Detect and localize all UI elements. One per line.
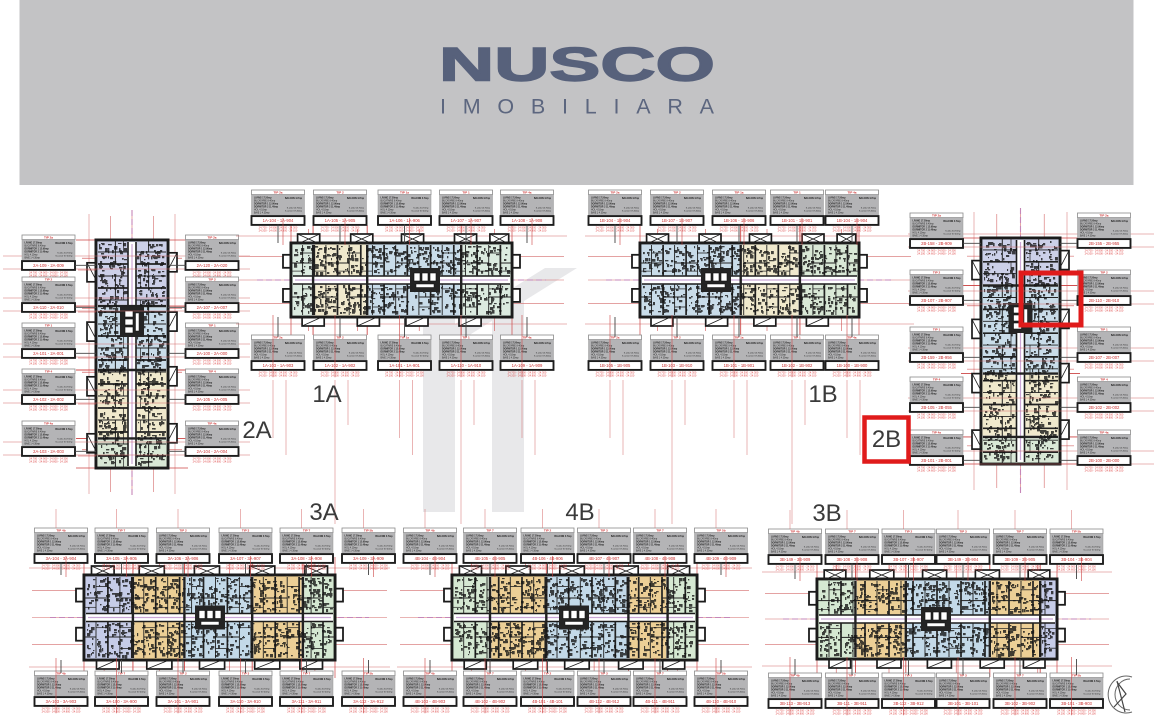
svg-text:BALCON 4.7mp: BALCON 4.7mp bbox=[684, 342, 702, 345]
svg-text:1B-105 - 1B-905: 1B-105 - 1B-905 bbox=[600, 363, 631, 368]
svg-text:DORMITOR 1 12.90mp: DORMITOR 1 12.90mp bbox=[159, 542, 184, 544]
svg-text:HOL 4.10mp: HOL 4.10mp bbox=[466, 691, 480, 693]
svg-text:S.constr 67.40mp: S.constr 67.40mp bbox=[1111, 397, 1129, 400]
svg-text:3B-102 - 3B-902: 3B-102 - 3B-902 bbox=[1005, 701, 1036, 706]
svg-text:TIP 7: TIP 7 bbox=[118, 529, 126, 533]
svg-text:BALCON 4.7mp: BALCON 4.7mp bbox=[55, 242, 73, 245]
svg-text:HOL 4.10mp: HOL 4.10mp bbox=[381, 355, 395, 357]
svg-text:DORMITOR 1 12.90mp: DORMITOR 1 12.90mp bbox=[188, 249, 213, 251]
svg-text:S.constr 67.40mp: S.constr 67.40mp bbox=[667, 548, 685, 551]
svg-text:BALCON 4.7mp: BALCON 4.7mp bbox=[915, 680, 933, 683]
svg-text:LIVING 17.50mp: LIVING 17.50mp bbox=[913, 278, 931, 280]
svg-text:BAIE 1 4.30mp: BAIE 1 4.30mp bbox=[580, 693, 596, 696]
svg-text:DORMITOR 1 12.90mp: DORMITOR 1 12.90mp bbox=[442, 204, 467, 206]
svg-text:3B-107 - 3B-907: 3B-107 - 3B-907 bbox=[893, 557, 924, 562]
svg-text:TIP 2: TIP 2 bbox=[45, 278, 53, 282]
svg-text:24.200 - 24.600 - 24.800 - 24.: 24.200 - 24.600 - 24.800 - 24.100 bbox=[349, 710, 388, 714]
svg-text:BUCATARIE 8.40mp: BUCATARIE 8.40mp bbox=[1080, 440, 1102, 443]
svg-text:BAIE 1 4.30mp: BAIE 1 4.30mp bbox=[406, 693, 422, 696]
svg-text:S.utila 54.70mp: S.utila 54.70mp bbox=[945, 229, 961, 232]
svg-text:HOL 4.10mp: HOL 4.10mp bbox=[715, 355, 729, 357]
svg-text:HOL 4.10mp: HOL 4.10mp bbox=[697, 691, 711, 693]
svg-text:DORMITOR 1 12.90mp: DORMITOR 1 12.90mp bbox=[771, 687, 796, 689]
svg-text:BUCATARIE 8.40mp: BUCATARIE 8.40mp bbox=[406, 538, 428, 541]
svg-text:BAIE 1 4.30mp: BAIE 1 4.30mp bbox=[503, 357, 519, 360]
svg-text:DORMITOR 2 11.40mp: DORMITOR 2 11.40mp bbox=[503, 351, 528, 354]
svg-text:S.utila 54.70mp: S.utila 54.70mp bbox=[861, 545, 877, 548]
svg-text:4B-104 - 4B-904: 4B-104 - 4B-904 bbox=[415, 556, 446, 561]
svg-text:DORMITOR 2 11.40mp: DORMITOR 2 11.40mp bbox=[345, 544, 370, 547]
svg-text:3A-101 - 3A-901: 3A-101 - 3A-901 bbox=[168, 699, 199, 704]
svg-text:24.200 - 24.600 - 24.800 - 24.: 24.200 - 24.600 - 24.800 - 24.100 bbox=[833, 374, 872, 378]
svg-text:24.200 - 24.600 - 24.800 - 24.: 24.200 - 24.600 - 24.800 - 24.100 bbox=[1085, 309, 1124, 313]
svg-text:S.utila 54.70mp: S.utila 54.70mp bbox=[917, 545, 933, 548]
svg-text:DORMITOR 2 11.40mp: DORMITOR 2 11.40mp bbox=[381, 351, 406, 354]
svg-text:BUCATARIE 8.40mp: BUCATARIE 8.40mp bbox=[828, 345, 850, 348]
svg-text:S.utila 54.70mp: S.utila 54.70mp bbox=[536, 206, 552, 209]
svg-text:HOL 4.10mp: HOL 4.10mp bbox=[913, 397, 927, 399]
svg-text:TIP 4b: TIP 4b bbox=[56, 529, 65, 533]
svg-text:S.constr 67.40mp: S.constr 67.40mp bbox=[411, 210, 429, 213]
svg-text:BUCATARIE 8.40mp: BUCATARIE 8.40mp bbox=[25, 245, 47, 248]
svg-text:DORMITOR 1 12.90mp: DORMITOR 1 12.90mp bbox=[466, 685, 491, 687]
svg-text:S.utila 54.70mp: S.utila 54.70mp bbox=[613, 687, 629, 690]
svg-text:HOL 4.10mp: HOL 4.10mp bbox=[1080, 450, 1094, 452]
svg-text:DORMITOR 1 12.90mp: DORMITOR 1 12.90mp bbox=[1080, 227, 1105, 229]
svg-text:BAIE 1 4.30mp: BAIE 1 4.30mp bbox=[283, 550, 299, 553]
svg-text:BALCON 4.7mp: BALCON 4.7mp bbox=[859, 342, 877, 345]
svg-text:S.utila 54.70mp: S.utila 54.70mp bbox=[624, 206, 640, 209]
svg-text:HOL 4.10mp: HOL 4.10mp bbox=[828, 210, 842, 212]
svg-text:1A-103 - 1A-903: 1A-103 - 1A-903 bbox=[263, 363, 294, 368]
svg-text:BAIE 1 4.30mp: BAIE 1 4.30mp bbox=[591, 212, 607, 215]
svg-text:LIVING 17.50mp: LIVING 17.50mp bbox=[524, 536, 542, 538]
svg-text:HOL 4.10mp: HOL 4.10mp bbox=[406, 548, 420, 550]
svg-text:BALCON 4.7mp: BALCON 4.7mp bbox=[219, 376, 237, 379]
svg-text:BUCATARIE 8.40mp: BUCATARIE 8.40mp bbox=[381, 200, 403, 203]
svg-text:S.utila 54.70mp: S.utila 54.70mp bbox=[1113, 286, 1129, 289]
svg-text:LIVING 17.50mp: LIVING 17.50mp bbox=[466, 536, 484, 538]
svg-text:S.utila 54.70mp: S.utila 54.70mp bbox=[730, 544, 746, 547]
svg-text:2B: 2B bbox=[872, 426, 901, 453]
svg-text:BALCON 4.7mp: BALCON 4.7mp bbox=[347, 197, 365, 200]
svg-text:S.utila 54.70mp: S.utila 54.70mp bbox=[192, 687, 208, 690]
svg-text:BUCATARIE 8.40mp: BUCATARIE 8.40mp bbox=[188, 333, 210, 336]
svg-text:DORMITOR 2 11.40mp: DORMITOR 2 11.40mp bbox=[773, 206, 798, 209]
svg-text:DORMITOR 2 11.40mp: DORMITOR 2 11.40mp bbox=[442, 206, 467, 209]
svg-text:4B-107 - 4B-907: 4B-107 - 4B-907 bbox=[589, 556, 620, 561]
svg-text:DORMITOR 2 11.40mp: DORMITOR 2 11.40mp bbox=[885, 545, 910, 548]
svg-text:DORMITOR 1 12.90mp: DORMITOR 1 12.90mp bbox=[885, 687, 910, 689]
svg-text:3A-106 - 3A-906: 3A-106 - 3A-906 bbox=[168, 556, 199, 561]
svg-text:DORMITOR 2 11.40mp: DORMITOR 2 11.40mp bbox=[188, 251, 213, 254]
svg-text:DORMITOR 2 11.40mp: DORMITOR 2 11.40mp bbox=[524, 687, 549, 690]
svg-text:BAIE 1 4.30mp: BAIE 1 4.30mp bbox=[188, 299, 204, 302]
svg-text:BUCATARIE 8.40mp: BUCATARIE 8.40mp bbox=[653, 200, 675, 203]
svg-text:DORMITOR 2 11.40mp: DORMITOR 2 11.40mp bbox=[1053, 545, 1078, 548]
svg-text:24.200 - 24.600 - 24.800 - 24.: 24.200 - 24.600 - 24.800 - 24.100 bbox=[1057, 712, 1096, 716]
svg-text:S.constr 67.40mp: S.constr 67.40mp bbox=[943, 450, 961, 453]
svg-text:DORMITOR 1 12.90mp: DORMITOR 1 12.90mp bbox=[25, 435, 50, 437]
svg-text:24.200 - 24.600 - 24.800 - 24.: 24.200 - 24.600 - 24.800 - 24.100 bbox=[528, 710, 567, 714]
svg-text:BAIE 1 4.30mp: BAIE 1 4.30mp bbox=[98, 550, 114, 553]
svg-text:2B-102 - 2B-002: 2B-102 - 2B-002 bbox=[1089, 405, 1120, 410]
svg-text:DORMITOR 1 12.90mp: DORMITOR 1 12.90mp bbox=[524, 685, 549, 687]
svg-text:S.constr 67.40mp: S.constr 67.40mp bbox=[375, 548, 393, 551]
svg-text:BAIE 1 4.30mp: BAIE 1 4.30mp bbox=[885, 695, 901, 698]
svg-text:BAIE 1 4.30mp: BAIE 1 4.30mp bbox=[773, 212, 789, 215]
svg-text:DORMITOR 2 11.40mp: DORMITOR 2 11.40mp bbox=[25, 437, 50, 440]
svg-text:HOL 4.10mp: HOL 4.10mp bbox=[697, 548, 711, 550]
svg-text:3B-104 - 3B-904: 3B-104 - 3B-904 bbox=[1061, 557, 1092, 562]
svg-text:BUCATARIE 8.40mp: BUCATARIE 8.40mp bbox=[222, 538, 244, 541]
svg-text:LIVING 17.50mp: LIVING 17.50mp bbox=[771, 537, 789, 539]
svg-text:HOL 4.10mp: HOL 4.10mp bbox=[828, 355, 842, 357]
svg-text:DORMITOR 1 12.90mp: DORMITOR 1 12.90mp bbox=[25, 249, 50, 251]
svg-text:DORMITOR 2 11.40mp: DORMITOR 2 11.40mp bbox=[222, 544, 247, 547]
svg-text:1A-102 - 1A-902: 1A-102 - 1A-902 bbox=[325, 363, 356, 368]
svg-text:DORMITOR 1 12.90mp: DORMITOR 1 12.90mp bbox=[316, 349, 341, 351]
svg-text:TIP 4a: TIP 4a bbox=[932, 431, 941, 435]
svg-text:BUCATARIE 8.40mp: BUCATARIE 8.40mp bbox=[773, 200, 795, 203]
svg-text:BALCON 4.7mp: BALCON 4.7mp bbox=[684, 197, 702, 200]
svg-text:HOL 4.10mp: HOL 4.10mp bbox=[466, 548, 480, 550]
svg-text:S.utila 54.70mp: S.utila 54.70mp bbox=[57, 293, 73, 296]
svg-text:S.constr 67.40mp: S.constr 67.40mp bbox=[55, 389, 73, 392]
svg-text:2A-100 - 2A-000: 2A-100 - 2A-000 bbox=[197, 351, 228, 356]
svg-text:BAIE 1 4.30mp: BAIE 1 4.30mp bbox=[25, 345, 41, 348]
svg-text:BUCATARIE 8.40mp: BUCATARIE 8.40mp bbox=[697, 681, 719, 684]
svg-text:BAIE 1 4.30mp: BAIE 1 4.30mp bbox=[653, 212, 669, 215]
svg-text:DORMITOR 1 12.90mp: DORMITOR 1 12.90mp bbox=[503, 349, 528, 351]
svg-text:S.utila 54.70mp: S.utila 54.70mp bbox=[686, 351, 702, 354]
svg-text:LIVING 17.50mp: LIVING 17.50mp bbox=[466, 679, 484, 681]
svg-text:BUCATARIE 8.40mp: BUCATARIE 8.40mp bbox=[1080, 223, 1102, 226]
svg-text:LIVING 17.50mp: LIVING 17.50mp bbox=[771, 681, 789, 683]
svg-text:1A-106 - 1A-906: 1A-106 - 1A-906 bbox=[389, 218, 420, 223]
svg-text:DORMITOR 2 11.40mp: DORMITOR 2 11.40mp bbox=[25, 339, 50, 342]
svg-text:DORMITOR 2 11.40mp: DORMITOR 2 11.40mp bbox=[913, 229, 938, 232]
svg-text:HOL 4.10mp: HOL 4.10mp bbox=[316, 355, 330, 357]
svg-text:BALCON 4.7mp: BALCON 4.7mp bbox=[859, 197, 877, 200]
svg-text:24.200 - 24.600 - 24.800 - 24.: 24.200 - 24.600 - 24.800 - 24.100 bbox=[193, 460, 232, 464]
svg-text:BUCATARIE 8.40mp: BUCATARIE 8.40mp bbox=[715, 345, 737, 348]
svg-text:BALCON 4.7mp: BALCON 4.7mp bbox=[411, 342, 429, 345]
svg-text:LIVING 17.50mp: LIVING 17.50mp bbox=[939, 537, 957, 539]
svg-text:TIP 7: TIP 7 bbox=[656, 529, 664, 533]
svg-text:24.200 - 24.600 - 24.800 - 24.: 24.200 - 24.600 - 24.800 - 24.100 bbox=[889, 712, 928, 716]
svg-text:HOL 4.10mp: HOL 4.10mp bbox=[591, 355, 605, 357]
svg-text:S.utila 54.70mp: S.utila 54.70mp bbox=[945, 393, 961, 396]
svg-text:TIP 2: TIP 2 bbox=[208, 278, 216, 282]
svg-text:HOL 4.10mp: HOL 4.10mp bbox=[771, 693, 785, 695]
svg-text:HOL 4.10mp: HOL 4.10mp bbox=[254, 355, 268, 357]
svg-text:HOL 4.10mp: HOL 4.10mp bbox=[345, 691, 359, 693]
svg-text:DORMITOR 1 12.90mp: DORMITOR 1 12.90mp bbox=[25, 291, 50, 293]
svg-text:S.utila 54.70mp: S.utila 54.70mp bbox=[192, 544, 208, 547]
svg-text:HOL 4.10mp: HOL 4.10mp bbox=[913, 347, 927, 349]
svg-text:BAIE 1 4.30mp: BAIE 1 4.30mp bbox=[188, 391, 204, 394]
svg-text:S.constr 67.40mp: S.constr 67.40mp bbox=[728, 691, 746, 694]
svg-text:DORMITOR 1 12.90mp: DORMITOR 1 12.90mp bbox=[828, 543, 853, 545]
svg-text:S.constr 67.40mp: S.constr 67.40mp bbox=[943, 347, 961, 350]
svg-text:LIVING 17.50mp: LIVING 17.50mp bbox=[715, 198, 733, 200]
svg-text:LIVING 17.50mp: LIVING 17.50mp bbox=[580, 679, 598, 681]
svg-text:S.constr 67.40mp: S.constr 67.40mp bbox=[473, 210, 491, 213]
svg-text:S.utila 54.70mp: S.utila 54.70mp bbox=[861, 689, 877, 692]
svg-text:LIVING 17.50mp: LIVING 17.50mp bbox=[222, 679, 240, 681]
svg-text:S.constr 67.40mp: S.constr 67.40mp bbox=[437, 548, 455, 551]
svg-text:HOL 4.10mp: HOL 4.10mp bbox=[222, 548, 236, 550]
svg-text:S.constr 67.40mp: S.constr 67.40mp bbox=[554, 548, 572, 551]
svg-text:BUCATARIE 8.40mp: BUCATARIE 8.40mp bbox=[188, 431, 210, 434]
svg-text:S.constr 67.40mp: S.constr 67.40mp bbox=[611, 691, 629, 694]
svg-text:24.200 - 24.600 - 24.800 - 24.: 24.200 - 24.600 - 24.800 - 24.100 bbox=[29, 460, 68, 464]
svg-text:24.200 - 24.600 - 24.800 - 24.: 24.200 - 24.600 - 24.800 - 24.100 bbox=[321, 374, 360, 378]
svg-text:S.utila 54.70mp: S.utila 54.70mp bbox=[70, 687, 86, 690]
svg-text:S.utila 54.70mp: S.utila 54.70mp bbox=[315, 544, 331, 547]
svg-text:TIP 2: TIP 2 bbox=[673, 191, 681, 195]
svg-text:2B-105 - 2B-055: 2B-105 - 2B-055 bbox=[921, 405, 952, 410]
svg-text:BAIE 1 4.30mp: BAIE 1 4.30mp bbox=[466, 550, 482, 553]
svg-text:LIVING 17.50mp: LIVING 17.50mp bbox=[316, 198, 334, 200]
svg-text:TIP 1: TIP 1 bbox=[933, 328, 941, 332]
svg-text:DORMITOR 2 11.40mp: DORMITOR 2 11.40mp bbox=[466, 687, 491, 690]
svg-text:BUCATARIE 8.40mp: BUCATARIE 8.40mp bbox=[254, 200, 276, 203]
svg-text:DORMITOR 1 12.90mp: DORMITOR 1 12.90mp bbox=[503, 204, 528, 206]
svg-text:DORMITOR 2 11.40mp: DORMITOR 2 11.40mp bbox=[913, 343, 938, 346]
svg-text:DORMITOR 1 12.90mp: DORMITOR 1 12.90mp bbox=[885, 543, 910, 545]
svg-text:HOL 4.10mp: HOL 4.10mp bbox=[25, 255, 39, 257]
svg-text:S.utila 54.70mp: S.utila 54.70mp bbox=[221, 385, 237, 388]
svg-text:24.200 - 24.600 - 24.800 - 24.: 24.200 - 24.600 - 24.800 - 24.100 bbox=[917, 416, 956, 420]
svg-text:3B-109 - 3B-905: 3B-109 - 3B-905 bbox=[1005, 557, 1036, 562]
svg-text:BALCON 4.7mp: BALCON 4.7mp bbox=[473, 197, 491, 200]
svg-text:DORMITOR 2 11.40mp: DORMITOR 2 11.40mp bbox=[25, 293, 50, 296]
svg-text:HOL 4.10mp: HOL 4.10mp bbox=[188, 441, 202, 443]
svg-text:DORMITOR 1 12.90mp: DORMITOR 1 12.90mp bbox=[1053, 687, 1078, 689]
svg-text:LIVING 17.50mp: LIVING 17.50mp bbox=[885, 681, 903, 683]
svg-text:BUCATARIE 8.40mp: BUCATARIE 8.40mp bbox=[25, 287, 47, 290]
svg-text:S.constr 67.40mp: S.constr 67.40mp bbox=[285, 355, 303, 358]
svg-text:LIVING 17.50mp: LIVING 17.50mp bbox=[283, 536, 301, 538]
svg-text:DORMITOR 1 12.90mp: DORMITOR 1 12.90mp bbox=[381, 349, 406, 351]
svg-text:S.utila 54.70mp: S.utila 54.70mp bbox=[57, 339, 73, 342]
svg-text:HOL 4.10mp: HOL 4.10mp bbox=[316, 210, 330, 212]
svg-text:DORMITOR 1 12.90mp: DORMITOR 1 12.90mp bbox=[580, 685, 605, 687]
svg-text:HOL 4.10mp: HOL 4.10mp bbox=[222, 691, 236, 693]
svg-text:2A-101 - 2A-001: 2A-101 - 2A-001 bbox=[33, 351, 64, 356]
svg-text:DORMITOR 2 11.40mp: DORMITOR 2 11.40mp bbox=[653, 206, 678, 209]
svg-text:BAIE 1 4.30mp: BAIE 1 4.30mp bbox=[254, 212, 270, 215]
svg-text:1B-101 - 1B-901: 1B-101 - 1B-901 bbox=[724, 363, 755, 368]
svg-text:2B-155 - 2B-955: 2B-155 - 2B-955 bbox=[1089, 241, 1120, 246]
svg-text:BUCATARIE 8.40mp: BUCATARIE 8.40mp bbox=[503, 345, 525, 348]
svg-text:BALCON 4.7mp: BALCON 4.7mp bbox=[55, 428, 73, 431]
svg-text:BALCON 4.7mp: BALCON 4.7mp bbox=[437, 678, 455, 681]
svg-text:DORMITOR 2 11.40mp: DORMITOR 2 11.40mp bbox=[1080, 446, 1105, 449]
svg-text:LIVING 17.50mp: LIVING 17.50mp bbox=[885, 537, 903, 539]
svg-text:BUCATARIE 8.40mp: BUCATARIE 8.40mp bbox=[771, 539, 793, 542]
svg-text:DORMITOR 2 11.40mp: DORMITOR 2 11.40mp bbox=[1080, 393, 1105, 396]
svg-text:LIVING 17.50mp: LIVING 17.50mp bbox=[98, 536, 116, 538]
svg-text:HOL 4.10mp: HOL 4.10mp bbox=[828, 693, 842, 695]
svg-text:BAIE 1 4.30mp: BAIE 1 4.30mp bbox=[381, 357, 397, 360]
svg-text:HOL 4.10mp: HOL 4.10mp bbox=[283, 691, 297, 693]
svg-text:BALCON 4.7mp: BALCON 4.7mp bbox=[219, 428, 237, 431]
svg-text:S.utila 54.70mp: S.utila 54.70mp bbox=[669, 544, 685, 547]
svg-text:BALCON 4.7mp: BALCON 4.7mp bbox=[55, 376, 73, 379]
svg-text:24.200 - 24.600 - 24.800 - 24.: 24.200 - 24.600 - 24.800 - 24.100 bbox=[29, 408, 68, 412]
svg-text:HOL 4.10mp: HOL 4.10mp bbox=[636, 548, 650, 550]
svg-text:BAIE 1 4.30mp: BAIE 1 4.30mp bbox=[715, 212, 731, 215]
svg-text:DORMITOR 1 12.90mp: DORMITOR 1 12.90mp bbox=[591, 204, 616, 206]
svg-text:BAIE 1 4.30mp: BAIE 1 4.30mp bbox=[1053, 551, 1069, 554]
svg-text:BALCON 4.7mp: BALCON 4.7mp bbox=[1027, 536, 1045, 539]
svg-text:DORMITOR 1 12.90mp: DORMITOR 1 12.90mp bbox=[188, 337, 213, 339]
svg-text:2A-120 - 2A-020: 2A-120 - 2A-020 bbox=[197, 263, 228, 268]
svg-text:DORMITOR 2 11.40mp: DORMITOR 2 11.40mp bbox=[503, 206, 528, 209]
svg-text:DORMITOR 1 12.90mp: DORMITOR 1 12.90mp bbox=[636, 685, 661, 687]
svg-text:DORMITOR 1 12.90mp: DORMITOR 1 12.90mp bbox=[697, 685, 722, 687]
svg-text:1A-104 - 1A-904: 1A-104 - 1A-904 bbox=[263, 218, 294, 223]
svg-text:BUCATARIE 8.40mp: BUCATARIE 8.40mp bbox=[98, 681, 120, 684]
svg-text:4B-109 - 4B-909: 4B-109 - 4B-909 bbox=[706, 556, 737, 561]
svg-text:DORMITOR 1 12.90mp: DORMITOR 1 12.90mp bbox=[188, 435, 213, 437]
svg-text:BAIE 1 4.30mp: BAIE 1 4.30mp bbox=[25, 299, 41, 302]
svg-text:S.constr 67.40mp: S.constr 67.40mp bbox=[915, 693, 933, 696]
svg-text:S.constr 67.40mp: S.constr 67.40mp bbox=[746, 355, 764, 358]
svg-text:BUCATARIE 8.40mp: BUCATARIE 8.40mp bbox=[188, 379, 210, 382]
svg-text:S.utila 54.70mp: S.utila 54.70mp bbox=[130, 544, 146, 547]
svg-text:4B-103 - 4B-903: 4B-103 - 4B-903 bbox=[415, 699, 446, 704]
svg-text:BUCATARIE 8.40mp: BUCATARIE 8.40mp bbox=[524, 681, 546, 684]
svg-text:BAIE 1 4.30mp: BAIE 1 4.30mp bbox=[653, 357, 669, 360]
svg-text:HOL 4.10mp: HOL 4.10mp bbox=[503, 210, 517, 212]
svg-text:HOL 4.10mp: HOL 4.10mp bbox=[345, 548, 359, 550]
svg-text:S.constr 67.40mp: S.constr 67.40mp bbox=[667, 691, 685, 694]
svg-text:DORMITOR 2 11.40mp: DORMITOR 2 11.40mp bbox=[222, 687, 247, 690]
svg-text:S.utila 54.70mp: S.utila 54.70mp bbox=[413, 351, 429, 354]
svg-text:BAIE 1 4.30mp: BAIE 1 4.30mp bbox=[1053, 695, 1069, 698]
svg-text:BALCON 4.7mp: BALCON 4.7mp bbox=[611, 678, 629, 681]
svg-text:BUCATARIE 8.40mp: BUCATARIE 8.40mp bbox=[885, 683, 907, 686]
svg-text:TIP 5b: TIP 5b bbox=[1072, 530, 1081, 534]
svg-text:S.utila 54.70mp: S.utila 54.70mp bbox=[349, 206, 365, 209]
svg-text:DORMITOR 2 11.40mp: DORMITOR 2 11.40mp bbox=[715, 351, 740, 354]
svg-text:HOL 4.10mp: HOL 4.10mp bbox=[25, 297, 39, 299]
svg-text:BALCON 4.7mp: BALCON 4.7mp bbox=[534, 197, 552, 200]
svg-text:LIVING 17.50mp: LIVING 17.50mp bbox=[503, 343, 521, 345]
svg-text:BALCON 4.7mp: BALCON 4.7mp bbox=[252, 678, 270, 681]
svg-text:S.utila 54.70mp: S.utila 54.70mp bbox=[439, 544, 455, 547]
svg-text:S.utila 54.70mp: S.utila 54.70mp bbox=[861, 206, 877, 209]
svg-text:S.utila 54.70mp: S.utila 54.70mp bbox=[287, 351, 303, 354]
svg-text:S.constr 67.40mp: S.constr 67.40mp bbox=[746, 210, 764, 213]
svg-text:TIP 2a: TIP 2a bbox=[44, 236, 53, 240]
svg-text:BALCON 4.7mp: BALCON 4.7mp bbox=[252, 535, 270, 538]
svg-text:3A-110 - 3A-910: 3A-110 - 3A-910 bbox=[230, 699, 261, 704]
svg-text:3B-101 - 3B-903: 3B-101 - 3B-903 bbox=[1061, 701, 1092, 706]
svg-text:DORMITOR 2 11.40mp: DORMITOR 2 11.40mp bbox=[591, 206, 616, 209]
svg-text:DORMITOR 1 12.90mp: DORMITOR 1 12.90mp bbox=[37, 542, 62, 544]
svg-text:HOL 4.10mp: HOL 4.10mp bbox=[913, 450, 927, 452]
svg-text:S.constr 67.40mp: S.constr 67.40mp bbox=[252, 691, 270, 694]
svg-text:HOL 4.10mp: HOL 4.10mp bbox=[913, 233, 927, 235]
svg-text:DORMITOR 2 11.40mp: DORMITOR 2 11.40mp bbox=[37, 687, 62, 690]
svg-text:LIVING 17.50mp: LIVING 17.50mp bbox=[636, 536, 654, 538]
svg-text:S.constr 67.40mp: S.constr 67.40mp bbox=[375, 691, 393, 694]
svg-text:BALCON 4.7mp: BALCON 4.7mp bbox=[411, 197, 429, 200]
svg-text:3A-104 - 3A-904: 3A-104 - 3A-904 bbox=[46, 556, 77, 561]
svg-text:BALCON 4.7mp: BALCON 4.7mp bbox=[554, 535, 572, 538]
svg-text:2B-159 - 2B-956: 2B-159 - 2B-956 bbox=[921, 355, 952, 360]
svg-text:DORMITOR 1 12.90mp: DORMITOR 1 12.90mp bbox=[524, 542, 549, 544]
svg-text:LIVING 17.50mp: LIVING 17.50mp bbox=[188, 285, 206, 287]
svg-text:BUCATARIE 8.40mp: BUCATARIE 8.40mp bbox=[996, 539, 1018, 542]
svg-text:DORMITOR 2 11.40mp: DORMITOR 2 11.40mp bbox=[591, 351, 616, 354]
svg-text:HOL 4.10mp: HOL 4.10mp bbox=[524, 548, 538, 550]
svg-text:S.utila 54.70mp: S.utila 54.70mp bbox=[287, 206, 303, 209]
svg-text:S.constr 67.40mp: S.constr 67.40mp bbox=[534, 210, 552, 213]
svg-text:LIVING 17.50mp: LIVING 17.50mp bbox=[939, 681, 957, 683]
svg-text:BUCATARIE 8.40mp: BUCATARIE 8.40mp bbox=[771, 683, 793, 686]
svg-text:DORMITOR 2 11.40mp: DORMITOR 2 11.40mp bbox=[37, 544, 62, 547]
svg-text:BALCON 4.7mp: BALCON 4.7mp bbox=[1111, 220, 1129, 223]
svg-text:LIVING 17.50mp: LIVING 17.50mp bbox=[828, 198, 846, 200]
svg-text:DORMITOR 2 11.40mp: DORMITOR 2 11.40mp bbox=[406, 544, 431, 547]
svg-text:2B-107 - 2B-907: 2B-107 - 2B-907 bbox=[921, 298, 952, 303]
svg-text:S.constr 67.40mp: S.constr 67.40mp bbox=[219, 441, 237, 444]
svg-text:LIVING 17.50mp: LIVING 17.50mp bbox=[283, 679, 301, 681]
svg-text:TIP 2a: TIP 2a bbox=[932, 214, 941, 218]
svg-text:S.constr 67.40mp: S.constr 67.40mp bbox=[802, 549, 820, 552]
svg-text:TIP 7: TIP 7 bbox=[848, 530, 856, 534]
svg-text:LIVING 17.50mp: LIVING 17.50mp bbox=[442, 198, 460, 200]
svg-text:BALCON 4.7mp: BALCON 4.7mp bbox=[859, 680, 877, 683]
svg-text:DORMITOR 1 12.90mp: DORMITOR 1 12.90mp bbox=[222, 542, 247, 544]
svg-text:DORMITOR 2 11.40mp: DORMITOR 2 11.40mp bbox=[524, 544, 549, 547]
svg-text:DORMITOR 2 11.40mp: DORMITOR 2 11.40mp bbox=[580, 687, 605, 690]
svg-text:TIP 2: TIP 2 bbox=[336, 191, 344, 195]
svg-text:BAIE 1 4.30mp: BAIE 1 4.30mp bbox=[1080, 452, 1096, 455]
svg-text:S.utila 54.70mp: S.utila 54.70mp bbox=[70, 544, 86, 547]
svg-text:1B-101 - 1B-901: 1B-101 - 1B-901 bbox=[782, 218, 813, 223]
svg-text:BAIE 1 4.30mp: BAIE 1 4.30mp bbox=[913, 452, 929, 455]
svg-text:DORMITOR 2 11.40mp: DORMITOR 2 11.40mp bbox=[188, 437, 213, 440]
svg-text:S.constr 67.40mp: S.constr 67.40mp bbox=[802, 693, 820, 696]
svg-text:DORMITOR 1 12.90mp: DORMITOR 1 12.90mp bbox=[222, 685, 247, 687]
svg-text:TIP 1: TIP 1 bbox=[45, 324, 53, 328]
svg-text:DORMITOR 1 12.90mp: DORMITOR 1 12.90mp bbox=[466, 542, 491, 544]
svg-text:LIVING 17.50mp: LIVING 17.50mp bbox=[37, 536, 55, 538]
svg-text:DORMITOR 2 11.40mp: DORMITOR 2 11.40mp bbox=[159, 544, 184, 547]
svg-text:BALCON 4.7mp: BALCON 4.7mp bbox=[667, 678, 685, 681]
svg-text:S.utila 54.70mp: S.utila 54.70mp bbox=[556, 687, 572, 690]
svg-text:2B-100 - 2B-000: 2B-100 - 2B-000 bbox=[1089, 458, 1120, 463]
svg-text:TIP 4b: TIP 4b bbox=[425, 529, 434, 533]
svg-text:BUCATARIE 8.40mp: BUCATARIE 8.40mp bbox=[98, 538, 120, 541]
svg-text:TIP 1: TIP 1 bbox=[208, 324, 216, 328]
svg-text:DORMITOR 1 12.90mp: DORMITOR 1 12.90mp bbox=[996, 543, 1021, 545]
svg-text:S.utila 54.70mp: S.utila 54.70mp bbox=[945, 343, 961, 346]
svg-text:LIVING 17.50mp: LIVING 17.50mp bbox=[159, 536, 177, 538]
svg-text:HOL 4.10mp: HOL 4.10mp bbox=[98, 548, 112, 550]
svg-text:HOL 4.10mp: HOL 4.10mp bbox=[1053, 549, 1067, 551]
svg-text:BALCON 4.7mp: BALCON 4.7mp bbox=[375, 678, 393, 681]
svg-text:DORMITOR 1 12.90mp: DORMITOR 1 12.90mp bbox=[913, 284, 938, 286]
svg-text:S.constr 67.40mp: S.constr 67.40mp bbox=[1083, 693, 1101, 696]
